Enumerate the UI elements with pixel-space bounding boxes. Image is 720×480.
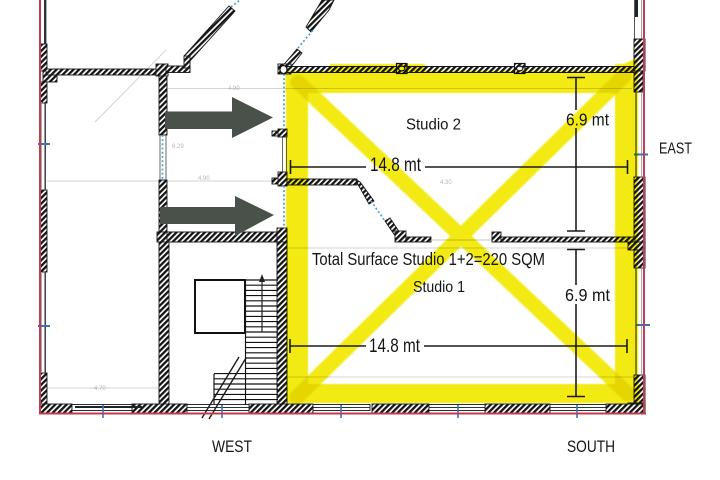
svg-text:14.8 mt: 14.8 mt [370,155,422,176]
svg-text:Studio 2: Studio 2 [406,117,461,134]
svg-text:6.9 mt: 6.9 mt [565,285,610,305]
svg-text:4.90: 4.90 [228,86,240,92]
svg-text:4.90: 4.90 [198,176,210,182]
svg-text:14.8 mt: 14.8 mt [369,336,421,357]
svg-text:SOUTH: SOUTH [567,438,615,456]
svg-text:6.9 mt: 6.9 mt [566,110,609,130]
svg-text:Studio 1: Studio 1 [413,279,465,296]
svg-text:4.70: 4.70 [94,386,106,392]
svg-text:6.29: 6.29 [172,144,184,150]
svg-text:Total Surface Studio 1+2=220 S: Total Surface Studio 1+2=220 SQM [312,249,545,269]
svg-text:4.30: 4.30 [440,180,452,186]
svg-text:WEST: WEST [212,438,252,456]
svg-text:EAST: EAST [659,141,692,158]
